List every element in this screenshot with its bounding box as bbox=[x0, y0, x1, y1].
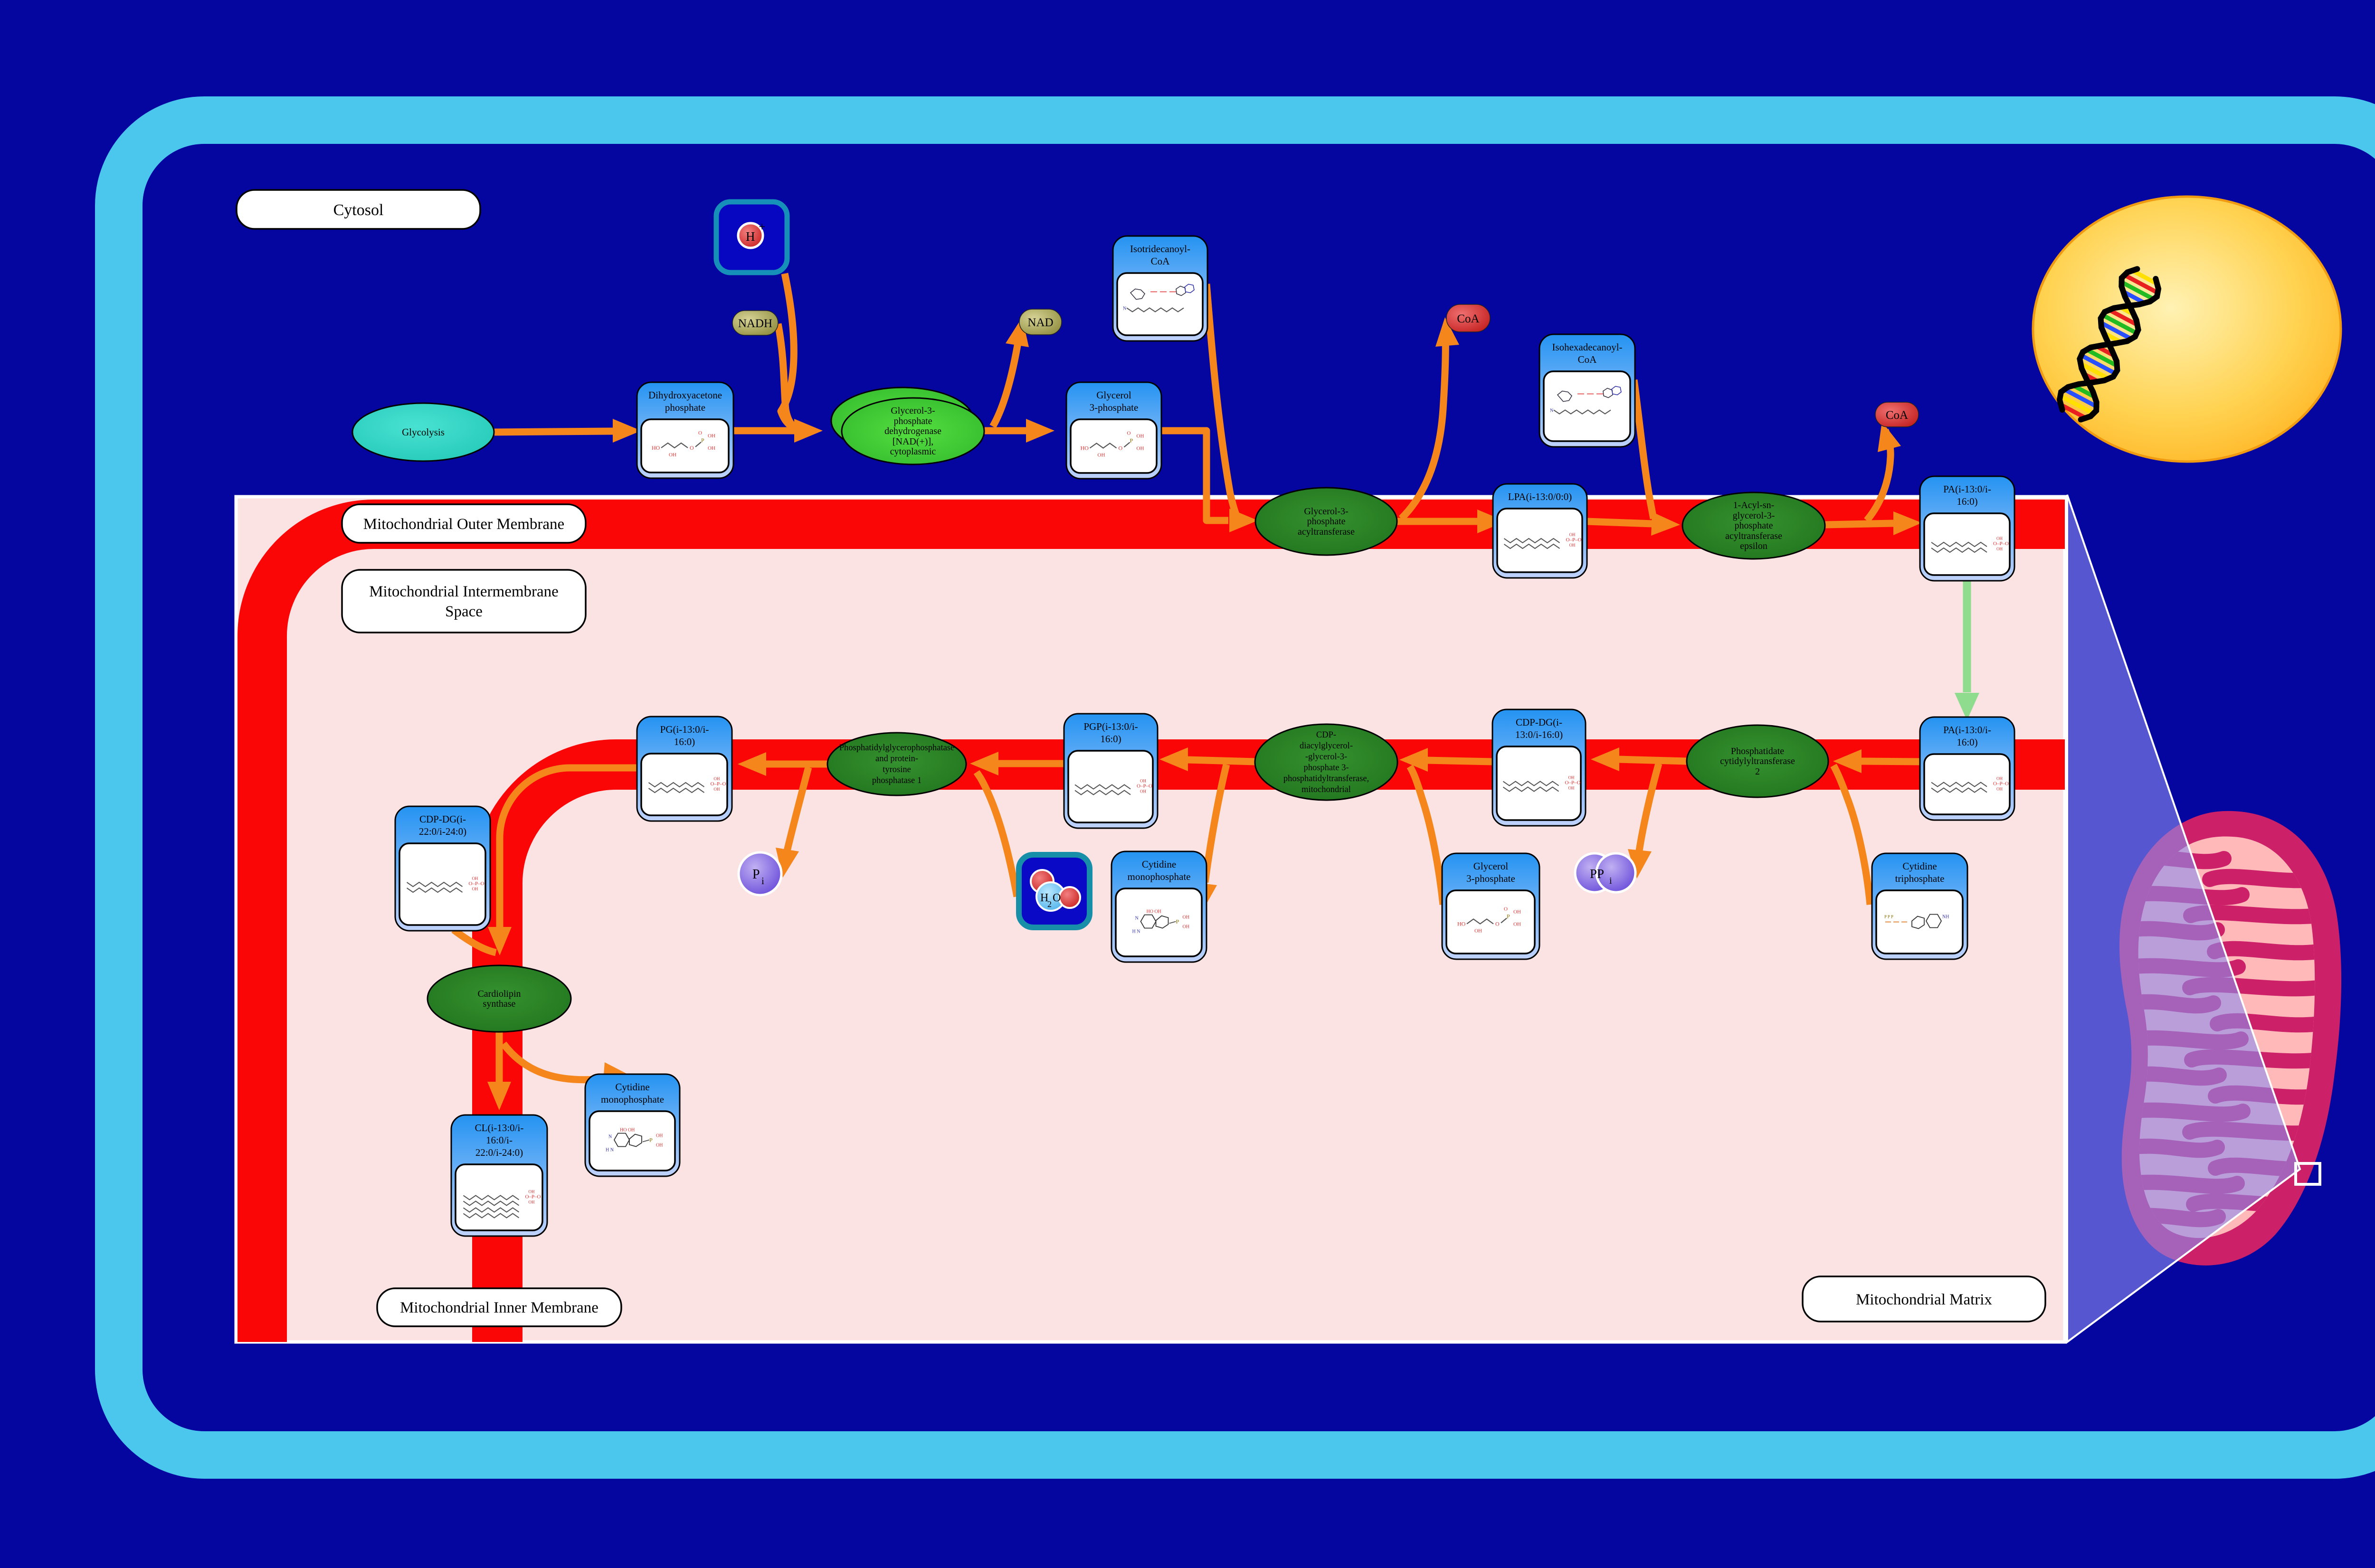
svg-text:O–P–O: O–P–O bbox=[1993, 541, 2009, 547]
svg-text:H N: H N bbox=[606, 1148, 614, 1153]
svg-text:O–P–O: O–P–O bbox=[1137, 784, 1152, 789]
svg-text:Cardiolipin: Cardiolipin bbox=[477, 989, 521, 999]
svg-text:Cytosol: Cytosol bbox=[333, 201, 384, 219]
svg-text:-glycerol-3-: -glycerol-3- bbox=[1305, 752, 1347, 762]
svg-text:OH: OH bbox=[1569, 532, 1576, 537]
svg-text:phosphatase 1: phosphatase 1 bbox=[872, 776, 921, 785]
svg-text:NH: NH bbox=[1942, 915, 1949, 920]
svg-text:CL(i-13:0/i-: CL(i-13:0/i- bbox=[475, 1122, 524, 1133]
svg-text:acyltransferase: acyltransferase bbox=[1298, 527, 1355, 537]
svg-text:O: O bbox=[690, 444, 694, 451]
svg-text:OH: OH bbox=[714, 787, 720, 792]
svg-text:CoA: CoA bbox=[1578, 354, 1597, 365]
svg-text:OH: OH bbox=[472, 887, 478, 891]
svg-text:O: O bbox=[1495, 921, 1500, 927]
svg-text:1-Acyl-sn-: 1-Acyl-sn- bbox=[1733, 500, 1775, 510]
svg-text:Glycerol-3-: Glycerol-3- bbox=[891, 406, 935, 416]
svg-text:N: N bbox=[1550, 408, 1553, 414]
svg-text:phosphate: phosphate bbox=[665, 402, 705, 413]
svg-text:diacylglycerol-: diacylglycerol- bbox=[1300, 741, 1353, 751]
svg-text:Phosphatidylglycerophosphatase: Phosphatidylglycerophosphatase bbox=[839, 743, 955, 753]
svg-text:cytoplasmic: cytoplasmic bbox=[890, 446, 936, 457]
svg-text:OH: OH bbox=[1137, 446, 1144, 452]
svg-text:OH: OH bbox=[529, 1190, 535, 1194]
svg-text:N: N bbox=[1135, 916, 1139, 921]
svg-text:16:0/i-: 16:0/i- bbox=[486, 1134, 513, 1146]
svg-text:Cytidine: Cytidine bbox=[615, 1081, 649, 1093]
svg-text:glycerol-3-: glycerol-3- bbox=[1733, 510, 1775, 521]
svg-text:HO OH: HO OH bbox=[620, 1128, 635, 1133]
svg-text:OH: OH bbox=[1569, 543, 1576, 548]
svg-text:Glycolysis: Glycolysis bbox=[402, 426, 445, 438]
svg-text:i: i bbox=[761, 875, 764, 887]
svg-text:16:0): 16:0) bbox=[1957, 496, 1977, 507]
svg-text:OH: OH bbox=[1140, 789, 1146, 794]
svg-text:tyrosine: tyrosine bbox=[883, 765, 911, 775]
svg-text:phosphate: phosphate bbox=[1307, 516, 1345, 527]
svg-text:OH: OH bbox=[1996, 776, 2003, 781]
svg-text:OH: OH bbox=[669, 452, 676, 458]
svg-text:O: O bbox=[1504, 907, 1508, 912]
svg-text:CoA: CoA bbox=[1457, 312, 1479, 325]
svg-text:2: 2 bbox=[1047, 899, 1052, 909]
svg-text:P: P bbox=[701, 437, 704, 444]
svg-text:H: H bbox=[746, 229, 755, 244]
svg-text:OH: OH bbox=[1996, 787, 2003, 792]
svg-text:OH: OH bbox=[529, 1200, 535, 1205]
svg-text:OH: OH bbox=[1474, 928, 1482, 934]
svg-text:O–P–O: O–P–O bbox=[1565, 780, 1581, 786]
svg-text:O–P–O: O–P–O bbox=[1566, 537, 1582, 543]
svg-text:Phosphatidate: Phosphatidate bbox=[1731, 746, 1784, 756]
svg-text:Space: Space bbox=[445, 603, 483, 620]
svg-text:phosphate: phosphate bbox=[1734, 520, 1773, 531]
svg-text:Isotridecanoyl-: Isotridecanoyl- bbox=[1130, 243, 1190, 255]
svg-text:OH: OH bbox=[472, 876, 478, 881]
svg-text:OH: OH bbox=[1513, 909, 1521, 915]
svg-text:Isohexadecanoyl-: Isohexadecanoyl- bbox=[1552, 341, 1622, 353]
svg-text:16:0): 16:0) bbox=[674, 736, 695, 747]
svg-text:OH: OH bbox=[1996, 547, 2003, 551]
svg-text:22:0/i-24:0): 22:0/i-24:0) bbox=[475, 1147, 523, 1158]
svg-text:CDP-DG(i-: CDP-DG(i- bbox=[419, 813, 466, 825]
svg-text:O–P–O: O–P–O bbox=[711, 781, 726, 787]
svg-text:HO: HO bbox=[1457, 921, 1466, 927]
svg-text:OH: OH bbox=[656, 1133, 663, 1139]
svg-text:PA(i-13:0/i-: PA(i-13:0/i- bbox=[1943, 483, 1991, 495]
svg-text:OH: OH bbox=[1996, 536, 2003, 541]
svg-text:epsilon: epsilon bbox=[1740, 541, 1767, 551]
svg-text:OH: OH bbox=[1137, 434, 1144, 439]
svg-text:i: i bbox=[1609, 876, 1612, 886]
svg-text:dehydrogenase: dehydrogenase bbox=[884, 426, 941, 436]
svg-text:Glycerol-3-: Glycerol-3- bbox=[1304, 506, 1348, 517]
svg-text:H N: H N bbox=[1132, 929, 1140, 935]
svg-text:PA(i-13:0/i-: PA(i-13:0/i- bbox=[1943, 724, 1991, 736]
svg-text:N: N bbox=[1123, 306, 1126, 312]
svg-text:OH: OH bbox=[656, 1143, 663, 1148]
svg-text:CDP-: CDP- bbox=[1316, 730, 1336, 740]
svg-text:Glycerol: Glycerol bbox=[1473, 860, 1509, 872]
svg-text:P: P bbox=[1176, 918, 1179, 925]
svg-text:HO: HO bbox=[1081, 445, 1089, 452]
svg-text:Cytidine: Cytidine bbox=[1902, 860, 1937, 872]
svg-text:monophosphate: monophosphate bbox=[601, 1094, 664, 1105]
svg-text:cytidylyltransferase: cytidylyltransferase bbox=[1720, 756, 1795, 766]
svg-text:22:0/i-24:0): 22:0/i-24:0) bbox=[419, 826, 466, 837]
svg-text:2: 2 bbox=[1755, 766, 1760, 777]
svg-text:phosphatidyltransferase,: phosphatidyltransferase, bbox=[1283, 774, 1369, 784]
svg-text:N: N bbox=[608, 1134, 612, 1140]
svg-text:LPA(i-13:0/0:0): LPA(i-13:0/0:0) bbox=[1508, 491, 1572, 502]
svg-text:O–P–O: O–P–O bbox=[1993, 781, 2009, 787]
svg-text:OH: OH bbox=[1568, 775, 1575, 780]
svg-text:[NAD(+)],: [NAD(+)], bbox=[893, 436, 933, 447]
svg-text:OH: OH bbox=[1183, 915, 1189, 920]
svg-text:mitochondrial: mitochondrial bbox=[1301, 785, 1351, 794]
svg-text:OH: OH bbox=[708, 445, 715, 451]
svg-text:PG(i-13:0/i-: PG(i-13:0/i- bbox=[660, 724, 709, 735]
svg-text:PP: PP bbox=[1590, 867, 1604, 881]
svg-text:P: P bbox=[752, 867, 760, 882]
svg-text:OH: OH bbox=[708, 433, 715, 439]
svg-text:phosphate: phosphate bbox=[893, 416, 932, 426]
svg-text:phosphate 3-: phosphate 3- bbox=[1303, 763, 1349, 773]
svg-text:CoA: CoA bbox=[1151, 255, 1170, 267]
svg-text:OH: OH bbox=[1568, 786, 1575, 791]
svg-text:monophosphate: monophosphate bbox=[1128, 871, 1191, 882]
svg-text:16:0): 16:0) bbox=[1957, 737, 1977, 748]
svg-text:3-phosphate: 3-phosphate bbox=[1090, 402, 1139, 413]
svg-text:P: P bbox=[1130, 437, 1133, 444]
svg-text:16:0): 16:0) bbox=[1100, 733, 1121, 745]
svg-text:OH: OH bbox=[1098, 453, 1105, 458]
svg-text:O: O bbox=[1119, 445, 1123, 452]
svg-text:OH: OH bbox=[1513, 922, 1521, 927]
svg-text:acyltransferase: acyltransferase bbox=[1725, 531, 1782, 541]
svg-text:O: O bbox=[1053, 892, 1061, 904]
svg-text:13:0/i-16:0): 13:0/i-16:0) bbox=[1515, 729, 1563, 740]
svg-text:PGP(i-13:0/i-: PGP(i-13:0/i- bbox=[1083, 721, 1138, 732]
svg-text:P: P bbox=[649, 1137, 653, 1143]
svg-text:OH: OH bbox=[1183, 925, 1189, 930]
svg-text:Dihydroxyacetone: Dihydroxyacetone bbox=[648, 389, 722, 401]
svg-text:Mitochondrial Inner Membrane: Mitochondrial Inner Membrane bbox=[400, 1299, 598, 1316]
svg-text:P: P bbox=[1507, 913, 1510, 920]
svg-text:Cytidine: Cytidine bbox=[1142, 859, 1176, 870]
svg-text:O: O bbox=[698, 430, 702, 436]
svg-text:+: + bbox=[759, 221, 765, 234]
svg-text:Mitochondrial Outer Membrane: Mitochondrial Outer Membrane bbox=[363, 516, 564, 533]
svg-text:Glycerol: Glycerol bbox=[1096, 389, 1131, 401]
svg-text:Mitochondrial Matrix: Mitochondrial Matrix bbox=[1856, 1291, 1992, 1308]
svg-text:OH: OH bbox=[714, 776, 720, 781]
svg-text:3-phosphate: 3-phosphate bbox=[1466, 873, 1515, 884]
svg-text:OH: OH bbox=[1140, 779, 1146, 784]
svg-text:and protein-: and protein- bbox=[875, 754, 918, 764]
svg-text:CDP-DG(i-: CDP-DG(i- bbox=[1516, 717, 1562, 728]
svg-text:triphosphate: triphosphate bbox=[1895, 873, 1945, 884]
svg-text:Mitochondrial Intermembrane: Mitochondrial Intermembrane bbox=[369, 583, 559, 600]
svg-text:NADH: NADH bbox=[738, 317, 772, 330]
svg-text:O: O bbox=[1127, 431, 1131, 436]
svg-text:HO: HO bbox=[652, 444, 660, 451]
svg-text:O–P–O: O–P–O bbox=[525, 1194, 541, 1200]
svg-text:NAD: NAD bbox=[1027, 316, 1053, 329]
svg-text:O–P–O: O–P–O bbox=[469, 881, 484, 887]
svg-text:P P P: P P P bbox=[1884, 915, 1893, 919]
svg-text:CoA: CoA bbox=[1886, 409, 1908, 422]
svg-text:HO OH: HO OH bbox=[1147, 909, 1161, 915]
svg-text:synthase: synthase bbox=[483, 999, 516, 1009]
